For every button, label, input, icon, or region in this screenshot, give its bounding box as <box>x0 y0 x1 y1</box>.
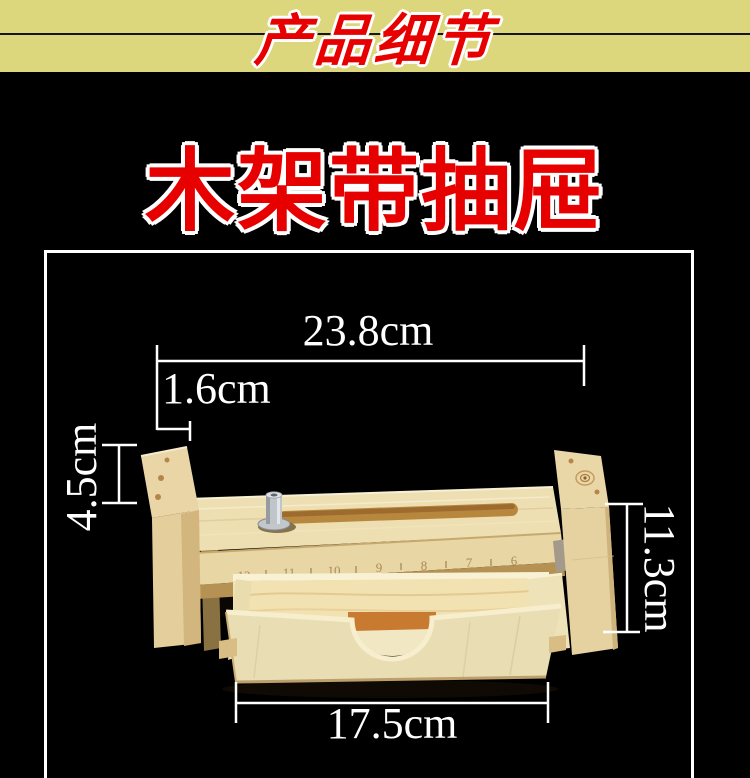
nail-hole <box>569 459 574 464</box>
drawer <box>219 572 570 682</box>
dim-label-top-width: 23.8cm <box>303 306 434 355</box>
product-detail-page: { "banner": { "label": "产品细节", "backgrou… <box>0 0 750 778</box>
nail-hole <box>165 458 170 463</box>
dim-label-post-thickness: 1.6cm <box>162 364 271 413</box>
banner-title: 产品细节 <box>0 0 750 77</box>
ruler-mark: 8 <box>421 558 428 573</box>
right-runner <box>549 635 566 653</box>
nail-hole <box>155 494 161 500</box>
dim-label-drawer-width: 17.5cm <box>327 699 458 748</box>
dim-label-side-height: 11.3cm <box>635 503 684 632</box>
ruler-mark: 9 <box>376 560 383 575</box>
banner: 产品细节 <box>0 0 750 72</box>
nail-hole <box>158 475 164 481</box>
dim-label-post-height: 4.5cm <box>57 423 106 532</box>
left-runner <box>219 638 237 659</box>
ruler-mark: 7 <box>466 555 473 570</box>
nail-hole <box>595 490 600 495</box>
ruler-mark: 6 <box>511 553 518 568</box>
left-post <box>141 447 201 648</box>
product-illustration: 12 11 10 9 8 7 6 <box>0 0 750 778</box>
